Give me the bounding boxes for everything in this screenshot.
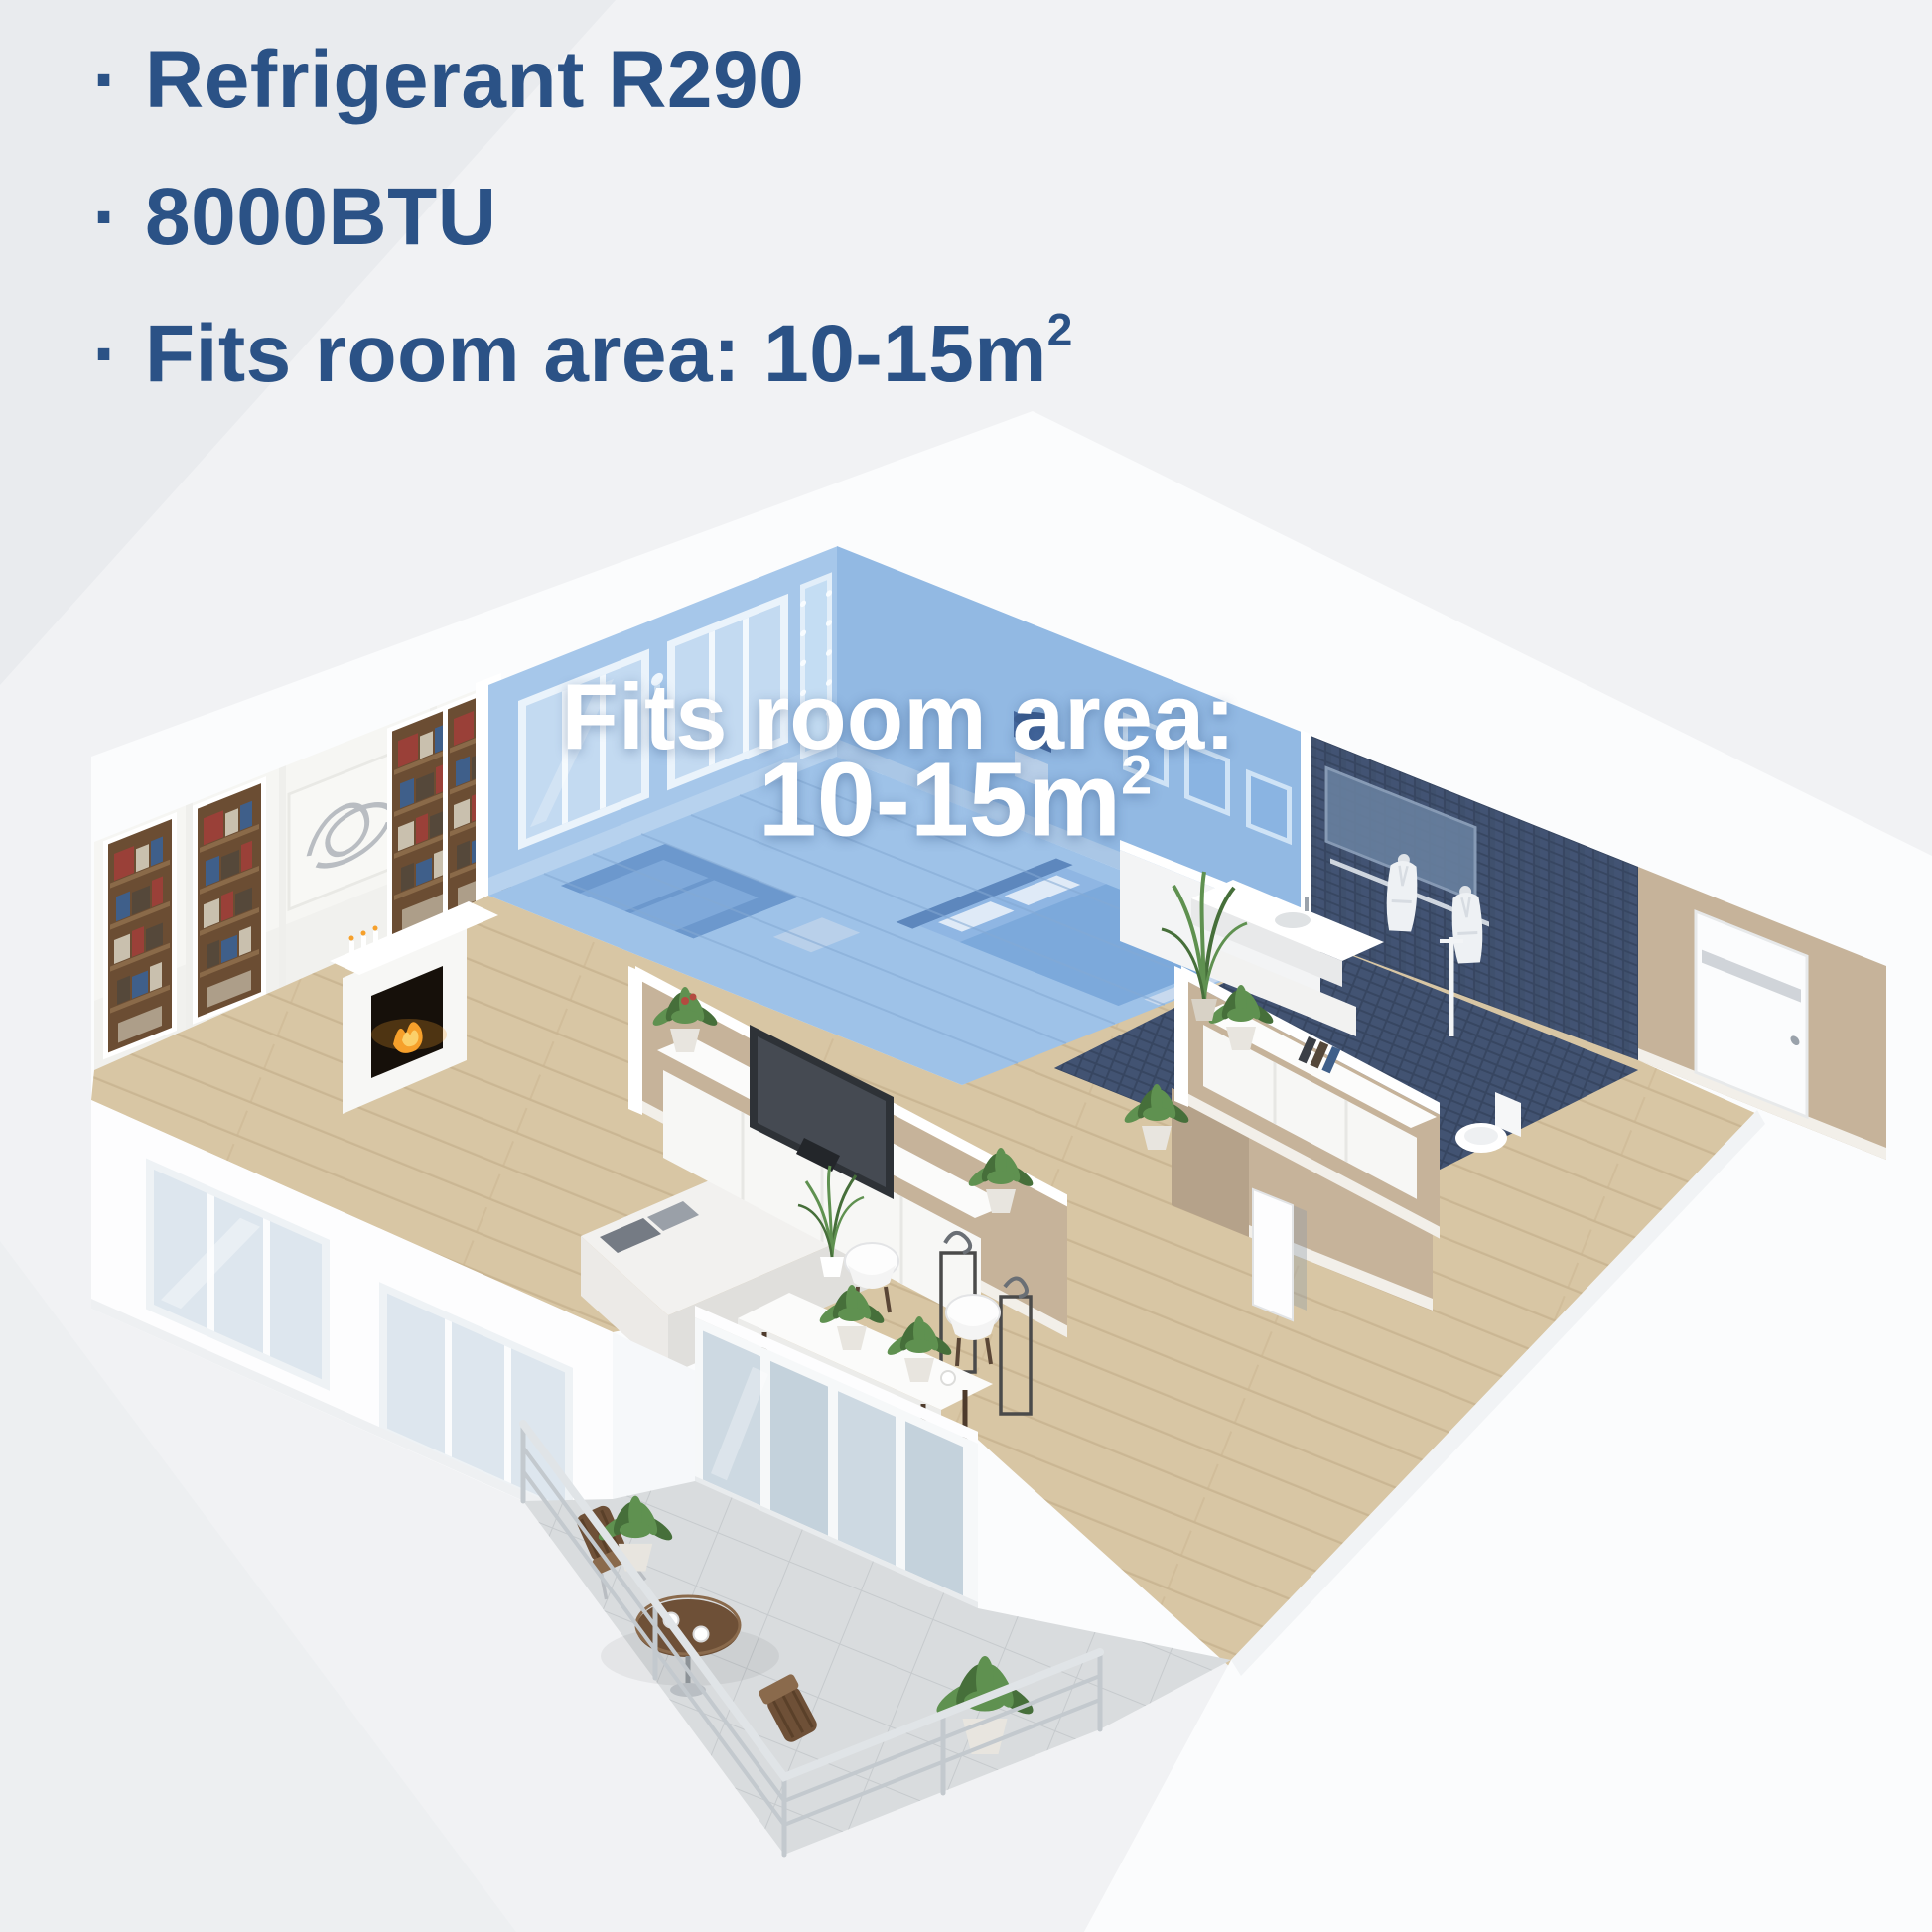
- spec-room-area: · Fits room area: 10-15m2: [83, 314, 1073, 395]
- spec-refrigerant: · Refrigerant R290: [83, 40, 1073, 121]
- superscript: 2: [1047, 304, 1073, 355]
- bullet-icon: ·: [83, 177, 129, 258]
- bullet-icon: ·: [83, 40, 129, 121]
- sink-basin: [1275, 912, 1311, 928]
- open-door: [1253, 1189, 1307, 1320]
- product-infographic: · Refrigerant R290 · 8000BTU · Fits room…: [0, 0, 1932, 1932]
- spec-list: · Refrigerant R290 · 8000BTU · Fits room…: [83, 40, 1073, 451]
- spec-text: Fits room area: 10-15m2: [145, 314, 1073, 395]
- spec-text: 8000BTU: [145, 177, 496, 258]
- table-cup: [941, 1371, 955, 1385]
- superscript: 2: [1121, 744, 1152, 806]
- spec-btu: · 8000BTU: [83, 177, 1073, 258]
- coffee-cup: [694, 1627, 709, 1642]
- room-area-overlay-line2: 10-15m2: [759, 741, 1153, 861]
- bullet-icon: ·: [83, 314, 129, 395]
- spec-text: Refrigerant R290: [145, 40, 804, 121]
